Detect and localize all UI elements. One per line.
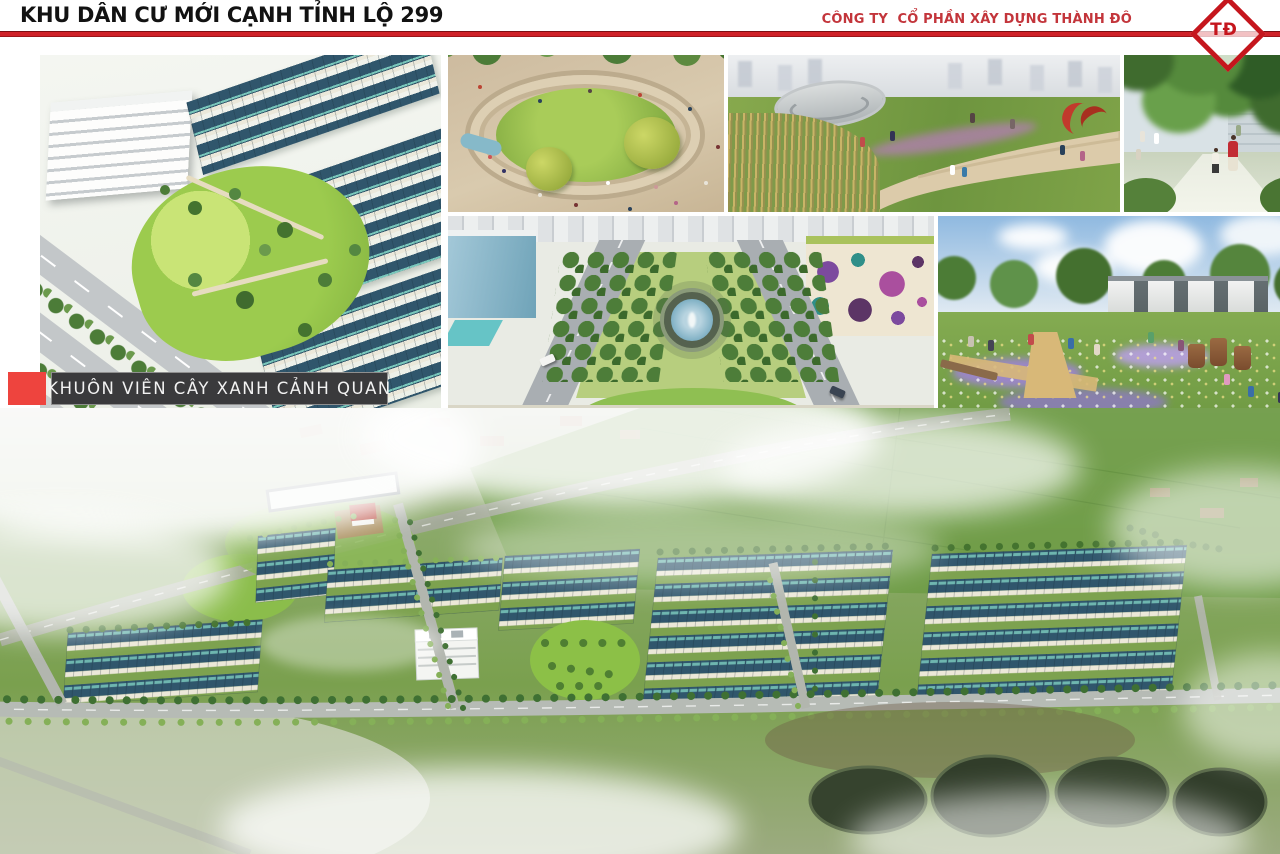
glass-building [448,230,536,318]
slide-canvas: KHU DÂN CƯ MỚI CẠNH TỈNH LỘ 299 CÔNG TY … [0,0,1280,854]
people-dots [950,165,955,175]
caption-banner: KHUÔN VIÊN CÂY XANH CẢNH QUAN [8,372,388,405]
caption-label: KHUÔN VIÊN CÂY XANH CẢNH QUAN [47,379,391,398]
render-park-pathway [728,55,1120,212]
caption-red-square [8,372,46,405]
lawn-tree [624,117,680,169]
office-building [46,90,193,200]
pool [448,320,503,346]
company-logo: TĐ [1190,0,1258,64]
fountain [664,292,720,348]
rusted-planter [1188,344,1205,368]
td-logo-text: TĐ [1190,0,1258,64]
masterplan-aerial-render [0,408,1280,854]
pavilion [1108,276,1268,312]
people-dots [1028,334,1034,345]
perimeter-trees [448,55,456,57]
render-community-garden [938,216,1280,421]
tree-rows [705,250,840,382]
rusted-planter [1210,338,1227,366]
rusted-planter [1234,346,1251,370]
tree-rows [543,250,678,382]
render-boulevard-fountain [448,216,934,421]
header-divider [0,31,1280,37]
clouds [998,224,1068,250]
park-trees [160,185,170,195]
caption-bar: KHUÔN VIÊN CÂY XANH CẢNH QUAN [51,372,388,405]
woman-figure [1228,141,1238,157]
render-aerial-residential-block [40,55,441,421]
people-dots [1140,131,1145,142]
garden-patch [530,620,640,700]
tree-canopy [1124,55,1174,91]
apartment-building [1228,55,1280,153]
render-circular-park [448,55,724,212]
render-tree-walkway [1124,55,1280,212]
page-title: KHU DÂN CƯ MỚI CẠNH TỈNH LỘ 299 [20,3,443,27]
child-figure [1212,153,1219,164]
people-dots [478,85,482,89]
lawn-tree [526,147,572,191]
company-name: CÔNG TY CỔ PHẦN XÂY DỰNG THÀNH ĐÔ [822,12,1132,27]
